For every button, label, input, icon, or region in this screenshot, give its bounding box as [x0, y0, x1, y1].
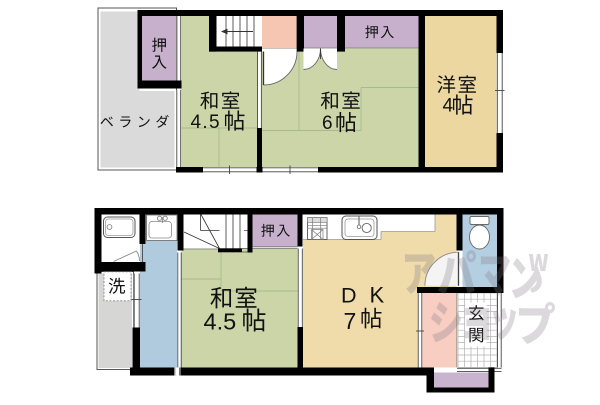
svg-text:K: K	[370, 282, 385, 307]
svg-text:7: 7	[344, 308, 357, 334]
svg-text:4: 4	[443, 96, 454, 117]
svg-text:4.5: 4.5	[191, 112, 221, 133]
svg-text:4.5: 4.5	[204, 309, 237, 335]
svg-text:D: D	[341, 283, 357, 307]
svg-text:6: 6	[322, 113, 333, 134]
